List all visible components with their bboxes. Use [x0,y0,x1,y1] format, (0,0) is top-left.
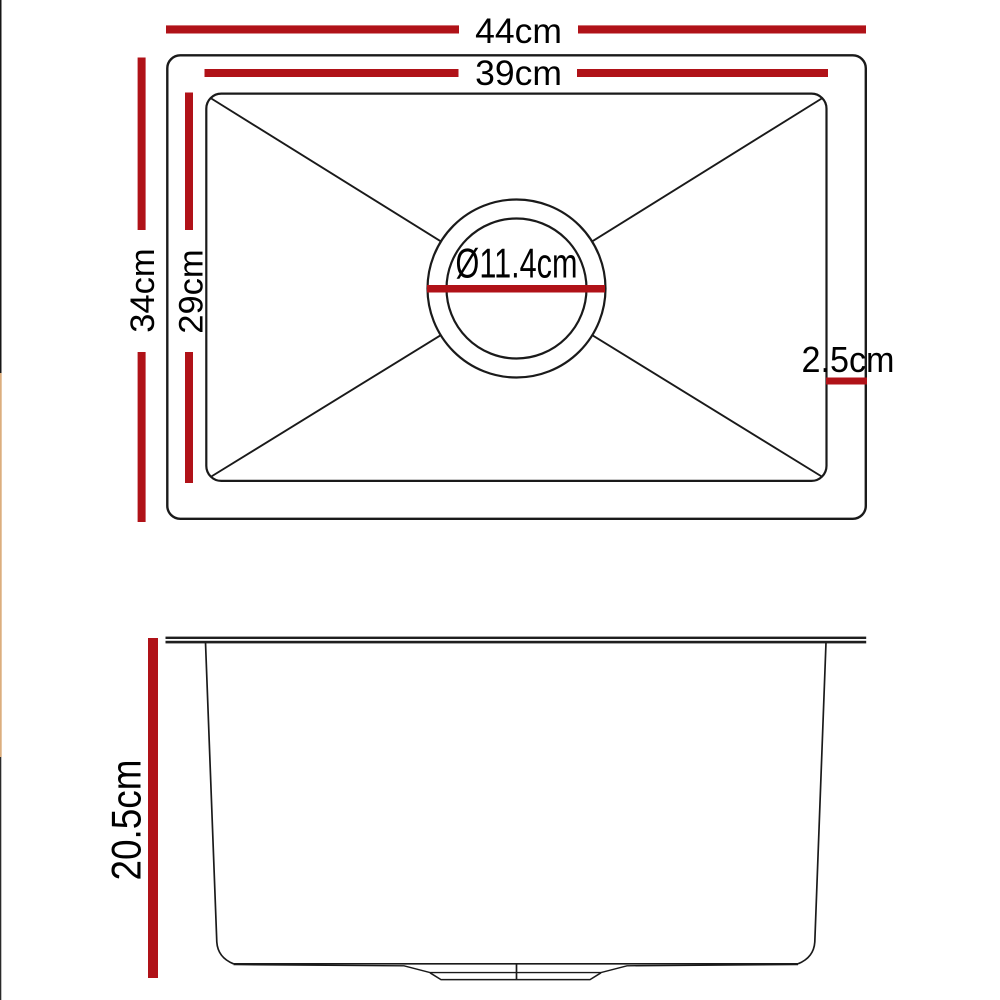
svg-text:44cm: 44cm [475,11,562,51]
svg-text:34cm: 34cm [124,248,162,332]
svg-text:29cm: 29cm [173,249,211,333]
svg-text:2.5cm: 2.5cm [802,339,895,380]
svg-text:Ø11.4cm: Ø11.4cm [456,240,578,287]
svg-text:39cm: 39cm [475,53,562,93]
svg-text:20.5cm: 20.5cm [103,760,150,881]
